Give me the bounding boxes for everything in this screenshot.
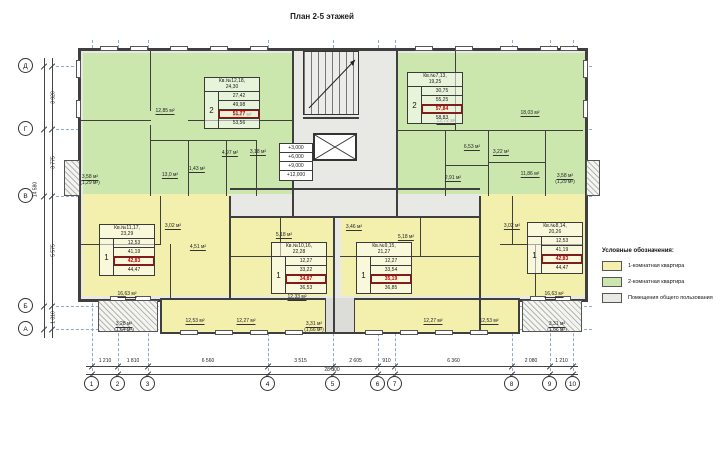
- stairs-icon: [303, 51, 359, 115]
- room-area-label: (1,64 м²): [114, 327, 134, 333]
- dimension-segment-label: 6 560: [202, 358, 215, 364]
- dimension-segment-label: 5 575: [51, 231, 58, 271]
- area-value: 44,47: [114, 266, 154, 275]
- room-area-label: (1,66 м²): [547, 327, 567, 333]
- interior-wall: [545, 130, 546, 196]
- area-value: 30,75: [422, 87, 462, 96]
- window: [100, 46, 118, 51]
- apartment-info-table: Кв.№10,16,22,28112,2733,2234,8736,53: [271, 242, 327, 294]
- balcony-left: [64, 160, 80, 196]
- total-area-highlighted: 51,77: [219, 110, 259, 119]
- interior-wall: [160, 196, 161, 244]
- elevator-icon: [313, 133, 357, 161]
- room-area-label: 4,97 м²: [222, 150, 238, 157]
- window: [250, 46, 268, 51]
- interior-wall: [488, 130, 489, 196]
- dimension-segment-label: 2 605: [349, 358, 362, 364]
- apartment-info-table: Кв.№9,15,21,27112,2733,5435,1936,85: [356, 242, 412, 294]
- apartment-unit-numbers: Кв.№7,13,19,25: [408, 73, 462, 87]
- apartment-info-table: Кв.№12,18,24,30227,4249,9851,7753,56: [204, 77, 260, 129]
- room-area-label: 6,53 м²: [464, 144, 480, 151]
- room-area-label: 11,86 м²: [521, 171, 540, 178]
- area-value: 36,53: [286, 284, 326, 293]
- room-area-label: 3,22 м²: [493, 149, 509, 156]
- interior-wall: [226, 140, 227, 196]
- room-area-label: 18,03 м²: [520, 110, 539, 117]
- area-value: 44,47: [542, 264, 582, 273]
- window: [435, 330, 453, 335]
- window: [135, 296, 151, 301]
- total-area-highlighted: 57,84: [422, 105, 462, 114]
- room-area-label: 12,27 м²: [423, 318, 442, 325]
- elevation-mark: +6,000: [280, 153, 312, 162]
- area-value: 12,53: [542, 237, 582, 246]
- area-value: 12,27: [371, 257, 411, 266]
- axis-bubble-1: 1: [84, 376, 99, 391]
- area-value: 49,98: [219, 101, 259, 110]
- interior-wall: [512, 196, 513, 244]
- total-area-highlighted: 35,19: [371, 275, 411, 284]
- window: [130, 46, 148, 51]
- axis-bubble-А: А: [18, 321, 33, 336]
- room-area-label: 5,18 м²: [398, 234, 414, 241]
- area-value: 27,42: [219, 92, 259, 101]
- window: [455, 46, 473, 51]
- room-count: 2: [408, 87, 422, 123]
- elevation-mark: +9,000: [280, 162, 312, 171]
- area-value: 12,27: [286, 257, 326, 266]
- dimension-segment-label: 1 210: [99, 358, 112, 364]
- area-value: 41,19: [542, 246, 582, 255]
- room-area-label: 12,85 м²: [155, 108, 174, 115]
- interior-wall: [292, 51, 294, 216]
- room-area-label: (1,29 м²): [80, 180, 100, 186]
- interior-wall: [230, 216, 480, 218]
- window: [250, 330, 268, 335]
- left-total-dimension-line: [44, 58, 45, 338]
- apartment-unit-numbers: Кв.№11,17,23,29: [100, 225, 154, 239]
- dimension-segment-label: 910: [382, 358, 390, 364]
- room-area-label: 3,02 м²: [504, 223, 520, 230]
- axis-bubble-4: 4: [260, 376, 275, 391]
- room-area-label: 13,0 м²: [162, 172, 178, 179]
- interior-wall: [229, 196, 231, 300]
- axis-bubble-Г: Г: [18, 121, 33, 136]
- window: [215, 330, 233, 335]
- room-count: 1: [357, 257, 371, 293]
- total-area-highlighted: 42,83: [114, 257, 154, 266]
- room-area-label: 2,91 м²: [445, 175, 461, 182]
- area-value: 33,54: [371, 266, 411, 275]
- interior-wall: [445, 165, 488, 166]
- area-value: 12,53: [114, 239, 154, 248]
- window: [76, 60, 81, 78]
- axis-bubble-5: 5: [325, 376, 340, 391]
- room-area-label: (1,29 м²): [555, 179, 575, 185]
- interior-wall: [230, 188, 480, 190]
- area-value: 58,83: [422, 114, 462, 123]
- area-value: 55,25: [422, 96, 462, 105]
- legend-item-label: Помещения общего пользования: [628, 295, 713, 301]
- interior-wall: [333, 216, 335, 332]
- legend-item-label: 1-комнатная квартира: [628, 263, 684, 269]
- one-room-swatch: [602, 261, 622, 271]
- dimension-segment-label: 1 810: [127, 358, 140, 364]
- elevation-mark: +12,000: [280, 171, 312, 180]
- area-value: 41,19: [114, 248, 154, 257]
- room-area-label: 3,18 м²: [250, 149, 266, 156]
- axis-bubble-6: 6: [370, 376, 385, 391]
- window: [400, 330, 418, 335]
- elevation-mark: +3,000: [280, 144, 312, 153]
- room-area-label: 12,27 м²: [236, 318, 255, 325]
- window: [76, 100, 81, 118]
- apartment-unit-numbers: Кв.№12,18,24,30: [205, 78, 259, 92]
- window: [583, 60, 588, 78]
- apartment-unit-numbers: Кв.№10,16,22,28: [272, 243, 326, 257]
- room-area-label: 3,46 м²: [346, 224, 362, 231]
- window: [560, 46, 578, 51]
- legend-item-two-room: 2-комнатная квартира: [602, 277, 717, 287]
- window: [470, 330, 488, 335]
- area-value: 33,22: [286, 266, 326, 275]
- room-area-label: 16,63 м²: [544, 291, 563, 298]
- window: [180, 330, 198, 335]
- axis-bubble-7: 7: [387, 376, 402, 391]
- room-area-label: 12,53 м²: [185, 318, 204, 325]
- dimension-segment-label: 3 515: [294, 358, 307, 364]
- dimension-segment-label: 6 360: [447, 358, 460, 364]
- balcony-right: [586, 160, 600, 196]
- room-area-label: 4,51 м²: [190, 244, 206, 251]
- room-area-label: 12,53 м²: [479, 318, 498, 325]
- room-count: 1: [272, 257, 286, 293]
- interior-wall: [150, 51, 151, 111]
- apartment-info-table: Кв.№8,14,20,26112,5341,1942,8344,47: [527, 222, 583, 274]
- room-count: 1: [528, 237, 542, 273]
- apartment-unit-numbers: Кв.№9,15,21,27: [357, 243, 411, 257]
- apartment-info-table: Кв.№7,13,19,25230,7555,2557,8458,83: [407, 72, 463, 124]
- room-count: 2: [205, 92, 219, 128]
- interior-wall: [488, 162, 545, 163]
- interior-wall: [445, 130, 446, 196]
- legend-item-label: 2-комнатная квартира: [628, 279, 684, 285]
- dimension-segment-label: 1 310: [51, 297, 58, 337]
- dimension-total-label: 14 580: [33, 170, 40, 210]
- interior-wall: [150, 140, 256, 141]
- apartment-unit-numbers: Кв.№8,14,20,26: [528, 223, 582, 237]
- legend-item-common: Помещения общего пользования: [602, 293, 717, 303]
- total-area-highlighted: 42,83: [542, 255, 582, 264]
- axis-bubble-9: 9: [542, 376, 557, 391]
- axis-bubble-Б: Б: [18, 298, 33, 313]
- interior-wall: [81, 120, 151, 121]
- dimension-segment-label: 1 210: [555, 358, 568, 364]
- dimension-segment-label: 2 080: [525, 358, 538, 364]
- interior-wall: [396, 51, 398, 216]
- room-area-label: (1,66 м²): [304, 327, 324, 333]
- window: [365, 330, 383, 335]
- axis-bubble-10: 10: [565, 376, 580, 391]
- room-area-label: 1,43 м²: [189, 166, 205, 173]
- window: [170, 46, 188, 51]
- interior-wall: [398, 130, 583, 131]
- dimension-segment-label: 3 920: [51, 77, 58, 117]
- axis-bubble-8: 8: [504, 376, 519, 391]
- floor-plan: +3,000+6,000+9,000+12,00012,85 м²13,57 м…: [0, 0, 720, 457]
- interior-wall: [170, 244, 171, 300]
- area-value: 53,56: [219, 119, 259, 128]
- room-count: 1: [100, 239, 114, 275]
- axis-bubble-В: В: [18, 188, 33, 203]
- interior-wall: [303, 117, 359, 119]
- window: [285, 330, 303, 335]
- elevation-table: +3,000+6,000+9,000+12,000: [279, 143, 313, 181]
- dimension-total-label: 28 800: [324, 367, 339, 373]
- axis-bubble-3: 3: [140, 376, 155, 391]
- room-area-label: 3,02 м²: [165, 223, 181, 230]
- common-area-swatch: [602, 293, 622, 303]
- interior-wall: [479, 196, 481, 332]
- total-area-highlighted: 34,87: [286, 275, 326, 284]
- window: [415, 46, 433, 51]
- window: [500, 46, 518, 51]
- room-area-label: 5,18 м²: [276, 232, 292, 239]
- window: [540, 46, 558, 51]
- entrance-vestibule: [325, 298, 355, 332]
- interior-wall: [150, 125, 151, 196]
- dimension-segment-label: 3 775: [51, 142, 58, 182]
- room-area-label: 12,33 м²: [287, 294, 306, 301]
- two-room-swatch: [602, 277, 622, 287]
- axis-bubble-2: 2: [110, 376, 125, 391]
- room-area-label: 16,63 м²: [117, 291, 136, 298]
- window: [583, 100, 588, 118]
- legend: Условные обозначения: 1-комнатная кварти…: [602, 248, 717, 309]
- legend-heading: Условные обозначения:: [602, 248, 717, 254]
- apartment-info-table: Кв.№11,17,23,29112,5341,1942,8344,47: [99, 224, 155, 276]
- axis-bubble-Д: Д: [18, 58, 33, 73]
- legend-item-one-room: 1-комнатная квартира: [602, 261, 717, 271]
- area-value: 36,85: [371, 284, 411, 293]
- window: [210, 46, 228, 51]
- interior-wall: [420, 216, 421, 256]
